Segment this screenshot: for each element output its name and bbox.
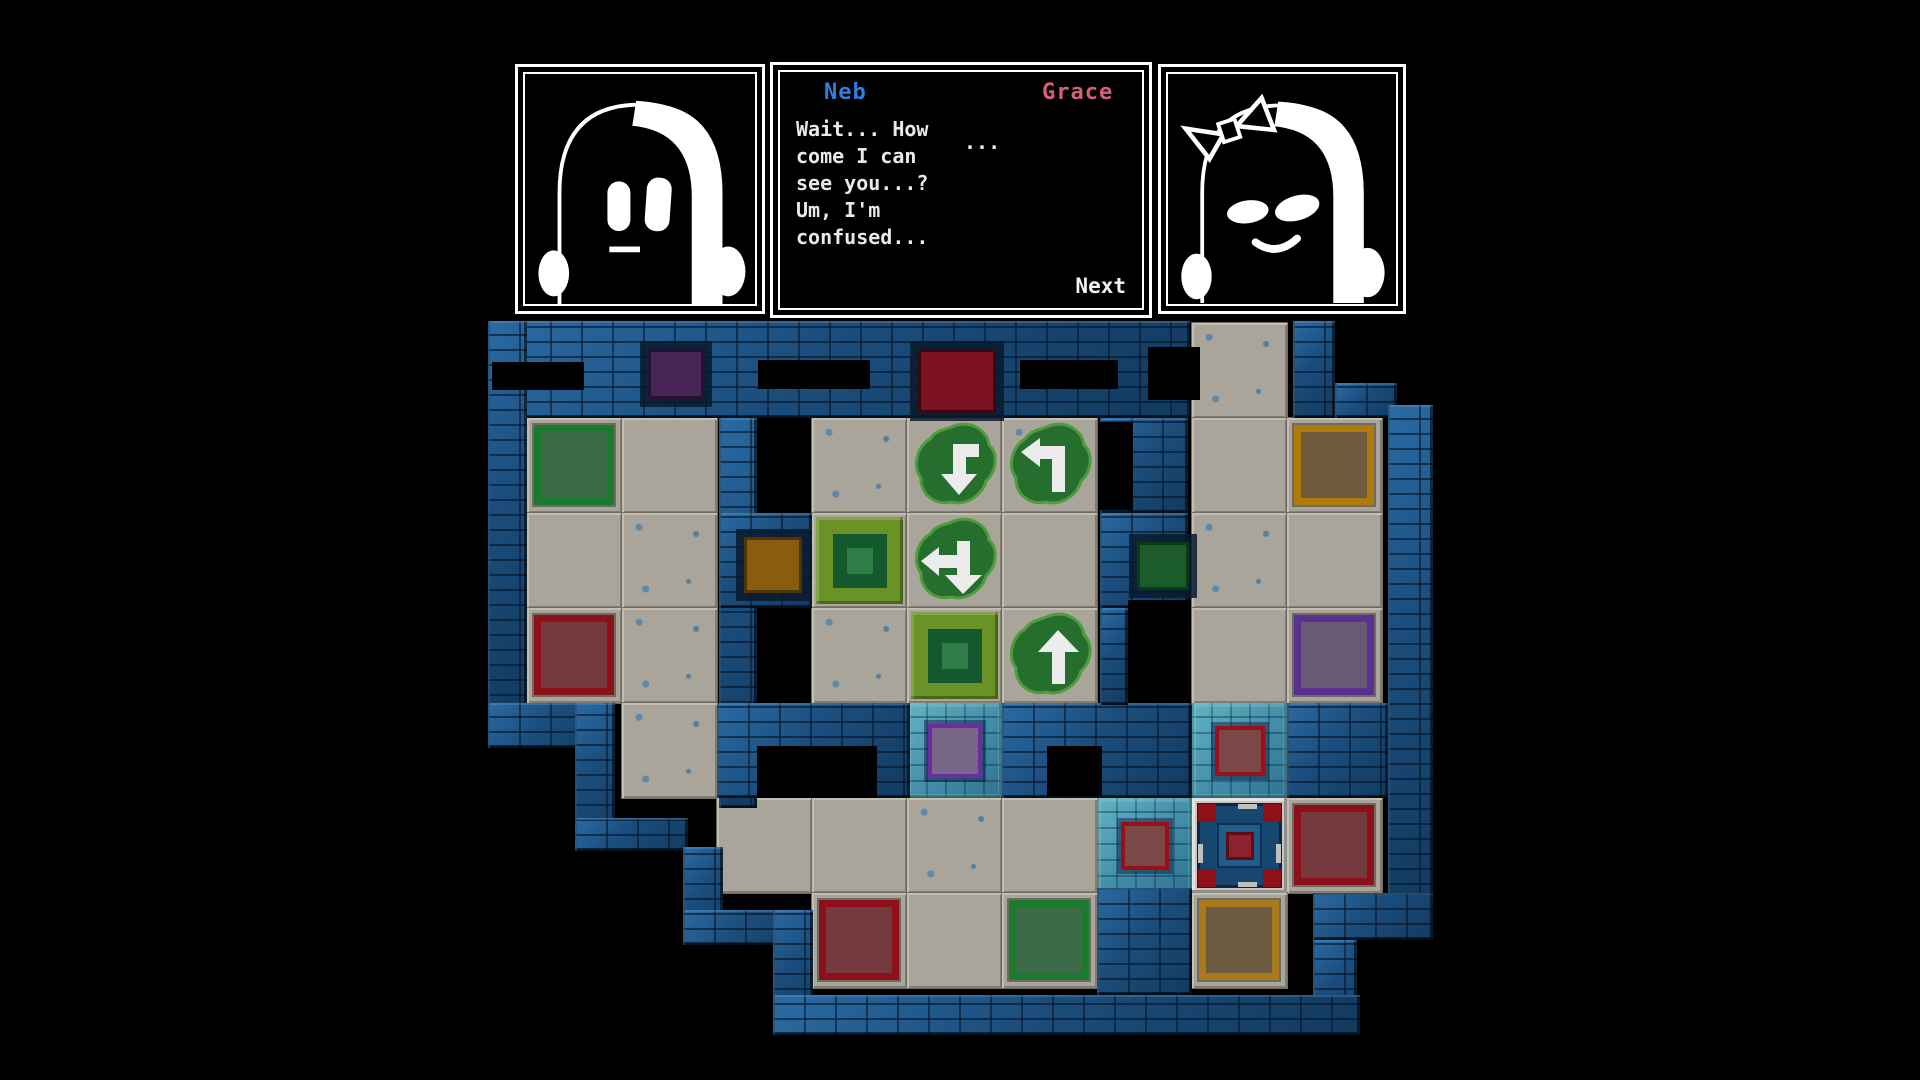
grace-ellipsis-response: ... — [964, 130, 1000, 154]
wall-opening — [492, 362, 584, 390]
wall-segment — [1293, 321, 1335, 418]
target-pad — [816, 517, 903, 604]
floor-tile — [907, 893, 1002, 988]
wall-segment — [1100, 608, 1128, 705]
floor-tile — [812, 798, 907, 893]
floor-tile — [622, 418, 717, 513]
wall-opening — [1100, 422, 1133, 510]
wall-opening — [757, 746, 877, 798]
wall-opening — [1128, 600, 1188, 700]
arrow-up-icon — [1002, 608, 1097, 703]
arrow-left-down-icon — [907, 513, 1002, 608]
wall-socket-brown — [744, 537, 802, 593]
floor-tile — [1002, 798, 1097, 893]
floor-tile — [527, 513, 622, 608]
block-red — [534, 615, 614, 695]
character-name-grace: Grace — [1042, 80, 1113, 105]
floor-tile — [1192, 513, 1287, 608]
portrait-box-right — [1158, 64, 1406, 314]
character-name-neb: Neb — [824, 80, 867, 105]
socket-red — [1121, 822, 1169, 870]
floor-tile — [622, 608, 717, 703]
block-green — [1009, 900, 1089, 980]
floor-tile — [1287, 513, 1382, 608]
wall-segment — [1313, 893, 1433, 940]
wall-socket-green — [1137, 542, 1189, 590]
next-button[interactable]: Next — [1075, 274, 1126, 298]
hair-bow-icon — [1184, 97, 1276, 163]
wall-opening — [1148, 347, 1200, 400]
wall-segment — [1097, 888, 1192, 995]
neb-mouth — [609, 247, 640, 253]
socket-tile-purple — [907, 703, 1002, 798]
portrait-box-left — [515, 64, 765, 314]
block-purple — [1294, 615, 1374, 695]
locked-block — [1192, 798, 1287, 893]
arrow-turn-down-icon — [907, 418, 1002, 513]
wall-segment — [1287, 703, 1388, 798]
floor-tile — [907, 798, 1002, 893]
arrow-turn-left-icon — [1002, 418, 1097, 513]
socket-tile-red — [1192, 703, 1287, 798]
floor-tile — [622, 513, 717, 608]
wall-opening — [1047, 746, 1102, 796]
floor-tile — [1192, 418, 1287, 513]
block-red — [819, 900, 899, 980]
wall-segment — [575, 818, 688, 851]
ghost-portrait-neb — [525, 74, 755, 304]
floor-tile — [1002, 513, 1097, 608]
socket-purple — [928, 724, 982, 778]
floor-tile — [812, 418, 907, 513]
wall-socket-purple — [648, 349, 704, 399]
floor-tile — [1192, 608, 1287, 703]
floor-tile — [1192, 323, 1287, 418]
wall-segment — [773, 995, 1360, 1035]
target-pad — [911, 612, 998, 699]
block-red — [1294, 805, 1374, 885]
socket-red — [1215, 726, 1265, 776]
game-viewport[interactable]: Neb Grace Wait... How come I can see you… — [0, 0, 1920, 1080]
dialogue-text: Wait... How come I can see you...? Um, I… — [796, 116, 928, 251]
block-orange — [1294, 425, 1374, 505]
wall-opening — [1020, 360, 1118, 389]
block-amber — [1199, 900, 1279, 980]
floor-tile — [717, 798, 812, 893]
wall-segment — [1388, 405, 1433, 900]
wall-socket-red — [918, 349, 996, 413]
floor-tile — [622, 703, 717, 798]
block-green — [534, 425, 614, 505]
floor-tile — [812, 608, 907, 703]
dialogue-box: Neb Grace Wait... How come I can see you… — [770, 62, 1152, 318]
grace-smile — [1255, 238, 1297, 249]
wall-opening — [758, 360, 870, 389]
socket-tile-red — [1097, 798, 1192, 893]
ghost-portrait-grace — [1168, 74, 1396, 304]
